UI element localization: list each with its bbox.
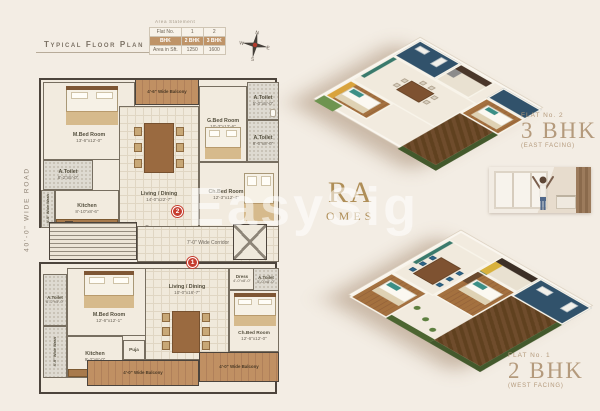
iso-floorplate-3bhk: [314, 38, 542, 169]
unit-2bhk: M.Bed Room 12'-6"x12'-1" A.Toilet 8'-2"x…: [39, 262, 277, 394]
table-cell: 2: [203, 28, 225, 37]
attached-toilet: A.Toilet 8'-2"x5'-0": [43, 274, 67, 326]
master-bedroom: M.Bed Room 12'-6"x12'-1": [67, 268, 151, 336]
table-cell: BHK: [150, 37, 182, 46]
room-label: 4'-0" Wide Balcony: [219, 364, 258, 369]
chair: [202, 327, 210, 336]
room-label: 4'-0" Wide Balcony: [123, 370, 162, 375]
room-dims: 8'-10"x8'-6": [75, 209, 98, 214]
bed: [372, 280, 417, 306]
interior-photo: [489, 167, 591, 213]
chair: [202, 313, 210, 322]
toilet-fixture: [270, 109, 276, 117]
table-cell: Area in Sft.: [150, 46, 182, 55]
desk: [556, 195, 576, 209]
flat-1-label-block: FLAT No. 1 2 BHK (WEST FACING): [508, 352, 598, 389]
flat-2-entrance-marker: 2: [172, 206, 183, 217]
chair: [435, 282, 443, 287]
attached-toilet: A.Toilet 8'-2"x5'-0": [43, 160, 93, 190]
area-statement-label: Area Statement: [155, 19, 195, 24]
table-cell: 1600: [203, 46, 225, 55]
flat-bhk: 3 BHK: [521, 119, 599, 143]
chair: [176, 143, 184, 152]
chair: [430, 95, 438, 100]
bed: [84, 274, 134, 308]
attached-toilet: A.Toilet 8'-0"x8'-0": [247, 120, 279, 162]
balcony: 4'-6" Wide Balcony: [135, 79, 199, 105]
room-dims: 14'-0"x22'-7": [146, 197, 172, 202]
chair: [176, 159, 184, 168]
window-mullion: [512, 173, 514, 207]
bed: [66, 89, 118, 125]
plant: [412, 305, 422, 311]
chair: [134, 143, 142, 152]
chair: [455, 271, 463, 276]
dining-table: [172, 311, 200, 353]
room-label: 4'-0" Wide Wash: [53, 337, 57, 366]
staircase: [49, 222, 137, 260]
table-cell: 3 BHK: [203, 37, 225, 46]
chair: [134, 159, 142, 168]
kitchen-counter: [496, 258, 538, 282]
compass-w: W: [239, 40, 245, 47]
room-dims: 8'-0"x8'-0": [253, 141, 274, 146]
wash-area: 4'-0" Wide Wash: [43, 326, 67, 378]
corridor-label: 7'-0" Wide Corridor: [187, 241, 229, 247]
page-title: Typical Floor Plan: [36, 40, 152, 53]
chair: [162, 313, 170, 322]
balcony: 4'-0" Wide Balcony: [199, 352, 279, 382]
plant: [428, 327, 438, 333]
table-row: Area in Sft. 1250 1600: [150, 46, 226, 55]
compass-icon: N E S W: [238, 28, 272, 62]
table-cell: 1: [181, 28, 203, 37]
flat-1-entrance-marker: 1: [187, 257, 198, 268]
room-dims: 5'-0"x8'-0": [257, 280, 275, 285]
room-dims: 8'-2"x5'-0": [58, 175, 79, 180]
flat-facing: (WEST FACING): [508, 383, 598, 389]
compass-n: N: [255, 30, 260, 37]
room-dims: 5'-0"x8'-0": [253, 101, 274, 106]
dress-room: Dress 4'-0"x8'-0": [229, 268, 255, 290]
bed: [458, 279, 503, 305]
person-silhouette: [529, 171, 557, 211]
children-bedroom: Ch.Bed Room 12'-6"x12'-0": [229, 290, 279, 352]
curtain: [576, 167, 591, 213]
table-cell: 1250: [181, 46, 203, 55]
room-dims: 13'-6"x12'-0": [76, 138, 102, 143]
room-dims: 8'-2"x5'-0": [46, 300, 64, 305]
chair: [422, 100, 430, 105]
compass-e: E: [266, 45, 271, 52]
bed: [234, 296, 276, 326]
room-label: Puja: [129, 347, 139, 352]
room-dims: 12'-6"x12'-1": [96, 318, 122, 323]
table-cell: 2 BHK: [181, 37, 203, 46]
road-label: 40'-0" WIDE ROAD: [24, 145, 31, 275]
attached-toilet: A.Toilet 5'-0"x8'-0": [247, 82, 279, 120]
room-label: 4'-6" Wide Balcony: [147, 89, 186, 94]
table-cell: Flat No.: [150, 28, 182, 37]
compass-s: S: [250, 57, 255, 64]
kitchen-counter: [455, 65, 492, 86]
area-table: Flat No. 1 2 BHK 2 BHK 3 BHK Area in Sft…: [149, 27, 226, 55]
living-dining: Living / Dining 10'-0"x16'-7": [145, 268, 229, 360]
chair: [162, 341, 170, 350]
table-row: Flat No. 1 2: [150, 28, 226, 37]
bath-fixture: [415, 46, 431, 55]
curtain: [361, 57, 397, 78]
bath-fixture: [560, 302, 578, 313]
flat-2-label-block: FLAT No. 2 3 BHK (EAST FACING): [521, 112, 599, 149]
chair: [202, 341, 210, 350]
chair: [445, 277, 453, 282]
chair: [176, 127, 184, 136]
dining-table: [396, 81, 434, 103]
living-dining: Living / Dining 14'-0"x22'-7": [119, 106, 199, 228]
watermark-overlay: EasySig: [188, 176, 419, 238]
balcony: 4'-0" Wide Balcony: [87, 360, 199, 386]
guest-bedroom: G.Bed Room 10'-3"x12'-6": [199, 86, 247, 162]
flat-bhk: 2 BHK: [508, 359, 598, 383]
room-dims: 10'-0"x16'-7": [174, 290, 200, 295]
room-label: 4'-0" Wide Wash: [46, 194, 50, 223]
table-row: BHK 2 BHK 3 BHK: [150, 37, 226, 46]
flat-facing: (EAST FACING): [521, 143, 599, 149]
bed: [205, 127, 241, 159]
room-dims: 4'-0"x8'-0": [233, 279, 251, 284]
attached-toilet: A.Toilet 5'-0"x8'-0": [253, 268, 279, 292]
plant: [421, 316, 431, 322]
chair: [134, 127, 142, 136]
chair: [162, 327, 170, 336]
puja-room: Puja: [123, 340, 145, 360]
bath-fixture: [536, 286, 554, 296]
dining-table: [144, 123, 174, 173]
brochure-page: Typical Floor Plan Area Statement Flat N…: [0, 0, 600, 411]
iso-floorplate-2bhk: [349, 230, 592, 369]
bath-fixture: [430, 57, 448, 67]
room-dims: 12'-6"x12'-0": [241, 336, 267, 341]
